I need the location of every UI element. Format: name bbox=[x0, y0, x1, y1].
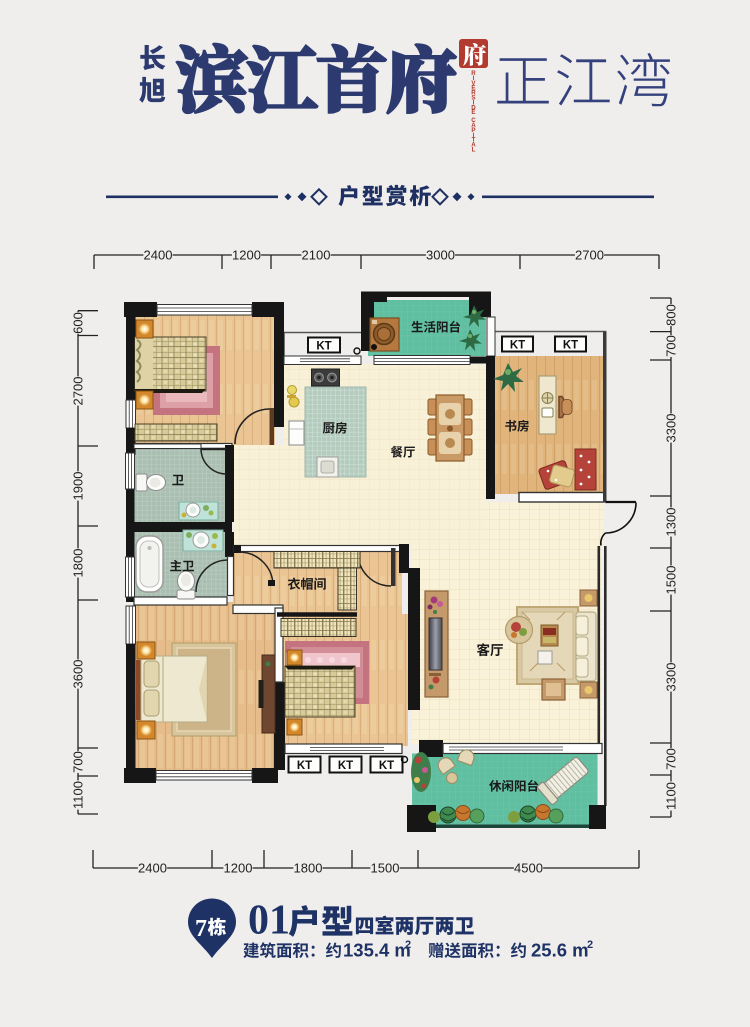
svg-text:1200: 1200 bbox=[224, 861, 253, 876]
svg-text:2400: 2400 bbox=[144, 248, 173, 263]
svg-text:KT: KT bbox=[316, 341, 331, 353]
svg-text:3600: 3600 bbox=[71, 660, 86, 689]
svg-text:25.6 m: 25.6 m bbox=[531, 940, 589, 961]
svg-text:800: 800 bbox=[664, 304, 679, 326]
svg-text:1800: 1800 bbox=[71, 549, 86, 578]
svg-text:700: 700 bbox=[664, 748, 679, 770]
svg-text:1900: 1900 bbox=[71, 472, 86, 501]
svg-text:2400: 2400 bbox=[138, 861, 167, 876]
svg-text:1300: 1300 bbox=[664, 508, 679, 537]
svg-text:L: L bbox=[472, 147, 476, 154]
svg-text:E: E bbox=[471, 109, 475, 116]
svg-text:1500: 1500 bbox=[371, 861, 400, 876]
svg-text:2: 2 bbox=[587, 939, 593, 951]
svg-text:600: 600 bbox=[71, 312, 86, 334]
svg-text:7: 7 bbox=[195, 916, 207, 942]
svg-text:2700: 2700 bbox=[575, 248, 604, 263]
svg-text:KT: KT bbox=[379, 760, 394, 772]
svg-text:700: 700 bbox=[664, 335, 679, 357]
svg-text:KT: KT bbox=[510, 340, 525, 352]
svg-text:4500: 4500 bbox=[514, 861, 543, 876]
svg-text:1800: 1800 bbox=[294, 861, 323, 876]
svg-text:135.4 m: 135.4 m bbox=[343, 940, 411, 961]
svg-text:KT: KT bbox=[297, 760, 312, 772]
svg-text:KT: KT bbox=[563, 340, 578, 352]
svg-text:1500: 1500 bbox=[664, 566, 679, 595]
svg-text:1200: 1200 bbox=[232, 248, 261, 263]
svg-text:1100: 1100 bbox=[71, 781, 86, 809]
svg-text:3300: 3300 bbox=[664, 663, 679, 692]
svg-text:3300: 3300 bbox=[664, 414, 679, 443]
svg-text:KT: KT bbox=[338, 760, 353, 772]
svg-text:2: 2 bbox=[405, 939, 411, 951]
svg-text:01: 01 bbox=[248, 898, 290, 944]
svg-text:2700: 2700 bbox=[71, 377, 86, 406]
svg-text:2100: 2100 bbox=[302, 248, 331, 263]
svg-text:700: 700 bbox=[71, 751, 86, 773]
svg-text:1100: 1100 bbox=[664, 782, 679, 810]
svg-text:3000: 3000 bbox=[426, 248, 455, 263]
